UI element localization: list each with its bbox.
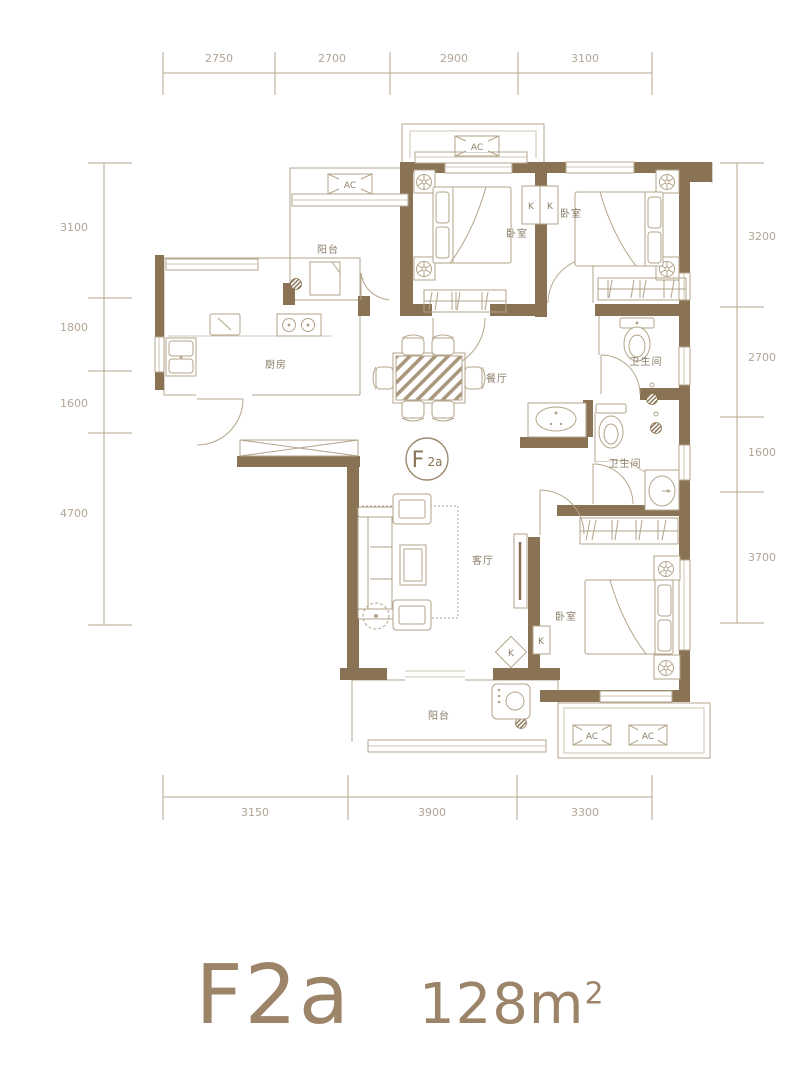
plan-area: 128m2	[419, 972, 605, 1037]
plan-title: F2a 128m2	[0, 948, 800, 1043]
window	[368, 740, 546, 752]
toilet	[624, 327, 650, 361]
window	[415, 152, 527, 163]
ac-label: AC	[471, 143, 483, 153]
living-room-set	[358, 494, 527, 630]
room-label-dining: 餐厅	[486, 372, 508, 385]
bathroom1-fixtures	[620, 318, 654, 361]
window	[600, 691, 672, 702]
room-label-bedroom3: 卧室	[555, 610, 577, 623]
unit-circle-sub: 2a	[428, 455, 443, 469]
bathroom2-fixtures	[595, 404, 679, 510]
bedroom3-furniture	[580, 518, 680, 679]
dim-top-1: 2750	[205, 52, 233, 65]
dim-left-1: 3100	[60, 221, 88, 234]
window	[679, 445, 690, 480]
unit-circle-main: F	[412, 448, 425, 473]
room-label-bathroom1: 卫生间	[630, 355, 663, 368]
dimension-right: 3200 2700 1600 3700	[720, 163, 776, 623]
entry-cabinet	[240, 440, 358, 456]
dim-bottom-3: 3300	[571, 806, 599, 819]
sofa	[358, 516, 392, 610]
window	[679, 273, 690, 300]
ac-label: AC	[642, 732, 654, 742]
bedroom1-furniture	[414, 170, 511, 312]
toilet	[599, 416, 623, 448]
floorplan-page: 2750 2700 2900 3100 3150 3900 3300 3100 …	[0, 0, 800, 1086]
toilet-tank	[596, 404, 626, 413]
floor-drains	[291, 279, 662, 729]
dining-table	[396, 356, 462, 400]
ac-label: AC	[586, 732, 598, 742]
room-label-kitchen: 厨房	[265, 358, 287, 371]
dim-right-1: 3200	[748, 230, 776, 243]
dim-right-4: 3700	[748, 551, 776, 564]
window	[566, 162, 634, 173]
window	[679, 347, 690, 385]
dimension-left: 3100 1800 1600 4700	[60, 163, 132, 625]
dim-bottom-2: 3900	[418, 806, 446, 819]
window	[155, 337, 164, 372]
window	[679, 560, 690, 650]
ac-unit: AC	[328, 174, 372, 194]
room-label-bedroom2: 卧室	[560, 207, 582, 220]
window	[166, 259, 258, 270]
window	[292, 194, 408, 206]
dimension-bottom: 3150 3900 3300	[163, 775, 652, 820]
washing-machine	[492, 684, 530, 719]
dim-right-2: 2700	[748, 351, 776, 364]
ac-unit: AC	[629, 725, 667, 745]
dim-top-2: 2700	[318, 52, 346, 65]
window	[445, 162, 512, 173]
room-label-bedroom1: 卧室	[506, 227, 528, 240]
dimension-top: 2750 2700 2900 3100	[163, 52, 652, 95]
closet-kk: K K	[522, 186, 558, 224]
dining-set	[373, 335, 485, 421]
ac-label: AC	[344, 181, 356, 191]
room-label-balcony-bottom: 阳台	[428, 709, 450, 722]
dim-top-4: 3100	[571, 52, 599, 65]
plan-area-sup: 2	[584, 976, 604, 1011]
room-label-balcony-top: 阳台	[317, 243, 339, 256]
bedroom2-furniture	[575, 170, 686, 300]
kitchen-fixtures	[166, 262, 340, 376]
unit-circle: F 2a	[406, 438, 448, 480]
entry-door-arc	[197, 399, 243, 445]
plan-model: F2a	[195, 948, 351, 1043]
vanity	[528, 403, 586, 437]
room-label-living: 客厅	[472, 554, 494, 567]
room-label-bathroom2: 卫生间	[609, 457, 642, 470]
ac-unit: AC	[573, 725, 611, 745]
dim-left-3: 1600	[60, 397, 88, 410]
dim-left-2: 1800	[60, 321, 88, 334]
balcony-top-door-arc	[361, 273, 389, 300]
dim-bottom-1: 3150	[241, 806, 269, 819]
k-markers: K K	[495, 626, 550, 668]
bathroom2-door-arc	[593, 464, 633, 504]
dim-right-3: 1600	[748, 446, 776, 459]
dim-top-3: 2900	[440, 52, 468, 65]
floorplan-canvas: 2750 2700 2900 3100 3150 3900 3300 3100 …	[0, 0, 800, 1086]
dim-left-4: 4700	[60, 507, 88, 520]
